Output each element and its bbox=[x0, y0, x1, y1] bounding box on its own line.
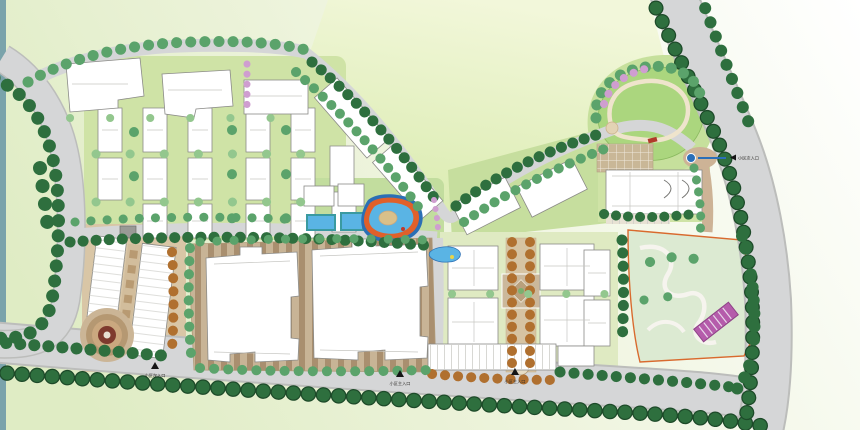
master-plan-stage: 小区次入口 小区次入口 小区主入口 小区主入口 bbox=[0, 0, 860, 430]
park-node bbox=[606, 122, 618, 134]
site-plan-svg: 小区次入口 小区次入口 小区主入口 小区主入口 bbox=[0, 0, 860, 430]
left-complex-trees bbox=[172, 252, 174, 348]
shops-strip-units bbox=[428, 344, 556, 370]
entrance-label-bottom-left: 小区次入口 bbox=[145, 372, 166, 379]
kids-pond bbox=[429, 247, 460, 262]
cross-road-trees-north bbox=[75, 217, 300, 222]
pond-dot bbox=[450, 255, 454, 259]
garden-lawn bbox=[628, 230, 752, 362]
plaza-center-dot bbox=[104, 332, 111, 339]
clubhouse-front-trees bbox=[604, 214, 694, 217]
lap-pool-1 bbox=[308, 216, 334, 229]
commercial-block bbox=[188, 238, 436, 372]
garden-left-trees bbox=[622, 240, 624, 344]
top-building-3 bbox=[244, 80, 308, 114]
entrance-label-bottom-center: 小区主入口 bbox=[390, 380, 411, 387]
pool-house-1 bbox=[304, 186, 334, 206]
pool-house-2 bbox=[338, 184, 364, 206]
shops-strip-east bbox=[558, 346, 594, 366]
pool-island bbox=[379, 211, 397, 225]
lap-pool-2 bbox=[342, 214, 362, 229]
pool-slide-dot bbox=[401, 227, 405, 231]
commercial-building-east bbox=[312, 239, 428, 360]
commercial-building-west bbox=[206, 247, 299, 362]
entrance-label-right: 小区次入口 bbox=[738, 155, 759, 162]
entrance-label-bottom-right: 小区主入口 bbox=[505, 378, 526, 385]
central-plaza-green bbox=[518, 288, 524, 294]
gate-icon bbox=[687, 154, 696, 163]
